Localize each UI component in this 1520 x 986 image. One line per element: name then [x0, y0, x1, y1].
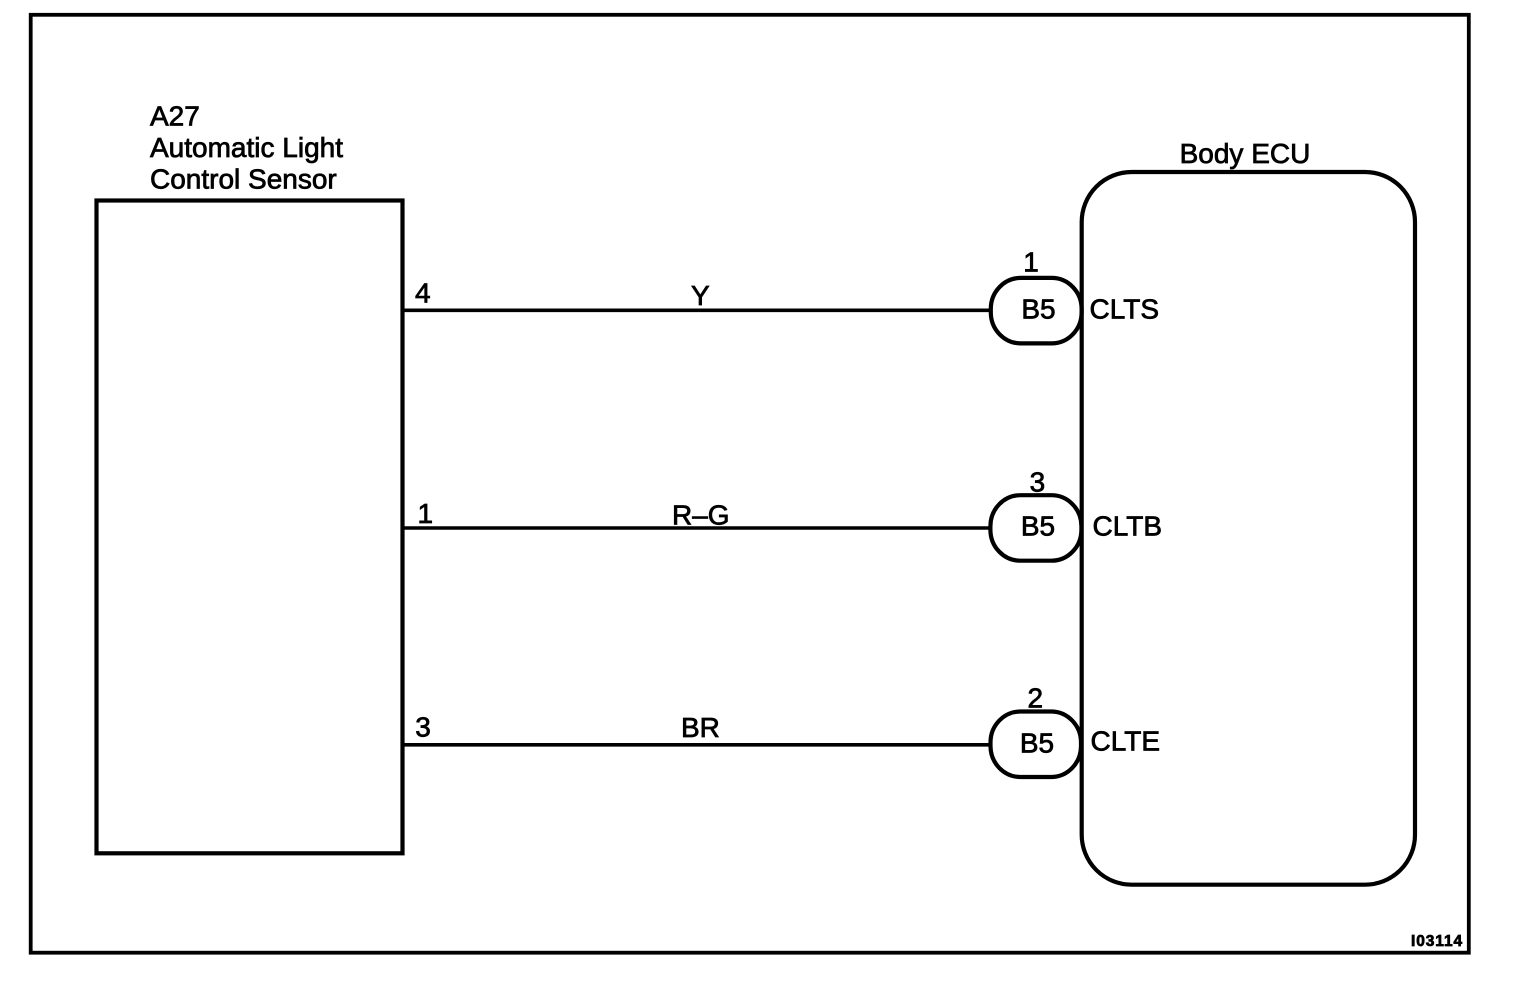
- svg-text:1: 1: [1023, 247, 1039, 278]
- svg-text:B5: B5: [1020, 727, 1054, 758]
- svg-text:Body ECU: Body ECU: [1180, 138, 1311, 169]
- svg-text:3: 3: [415, 711, 431, 742]
- svg-text:CLTE: CLTE: [1091, 726, 1161, 757]
- svg-text:I03114: I03114: [1411, 933, 1463, 950]
- svg-text:Automatic Light: Automatic Light: [150, 132, 343, 163]
- svg-text:B5: B5: [1021, 511, 1055, 542]
- svg-text:2: 2: [1028, 682, 1044, 713]
- svg-text:3: 3: [1030, 466, 1046, 497]
- svg-text:A27: A27: [150, 101, 200, 132]
- svg-text:BR: BR: [681, 712, 720, 743]
- svg-text:Control Sensor: Control Sensor: [150, 164, 337, 195]
- svg-text:CLTB: CLTB: [1093, 511, 1163, 542]
- svg-text:R–G: R–G: [672, 500, 730, 531]
- svg-text:B5: B5: [1021, 294, 1055, 325]
- svg-text:CLTS: CLTS: [1090, 293, 1160, 324]
- svg-text:Y: Y: [691, 280, 710, 311]
- svg-text:1: 1: [418, 498, 434, 529]
- svg-text:4: 4: [415, 277, 431, 308]
